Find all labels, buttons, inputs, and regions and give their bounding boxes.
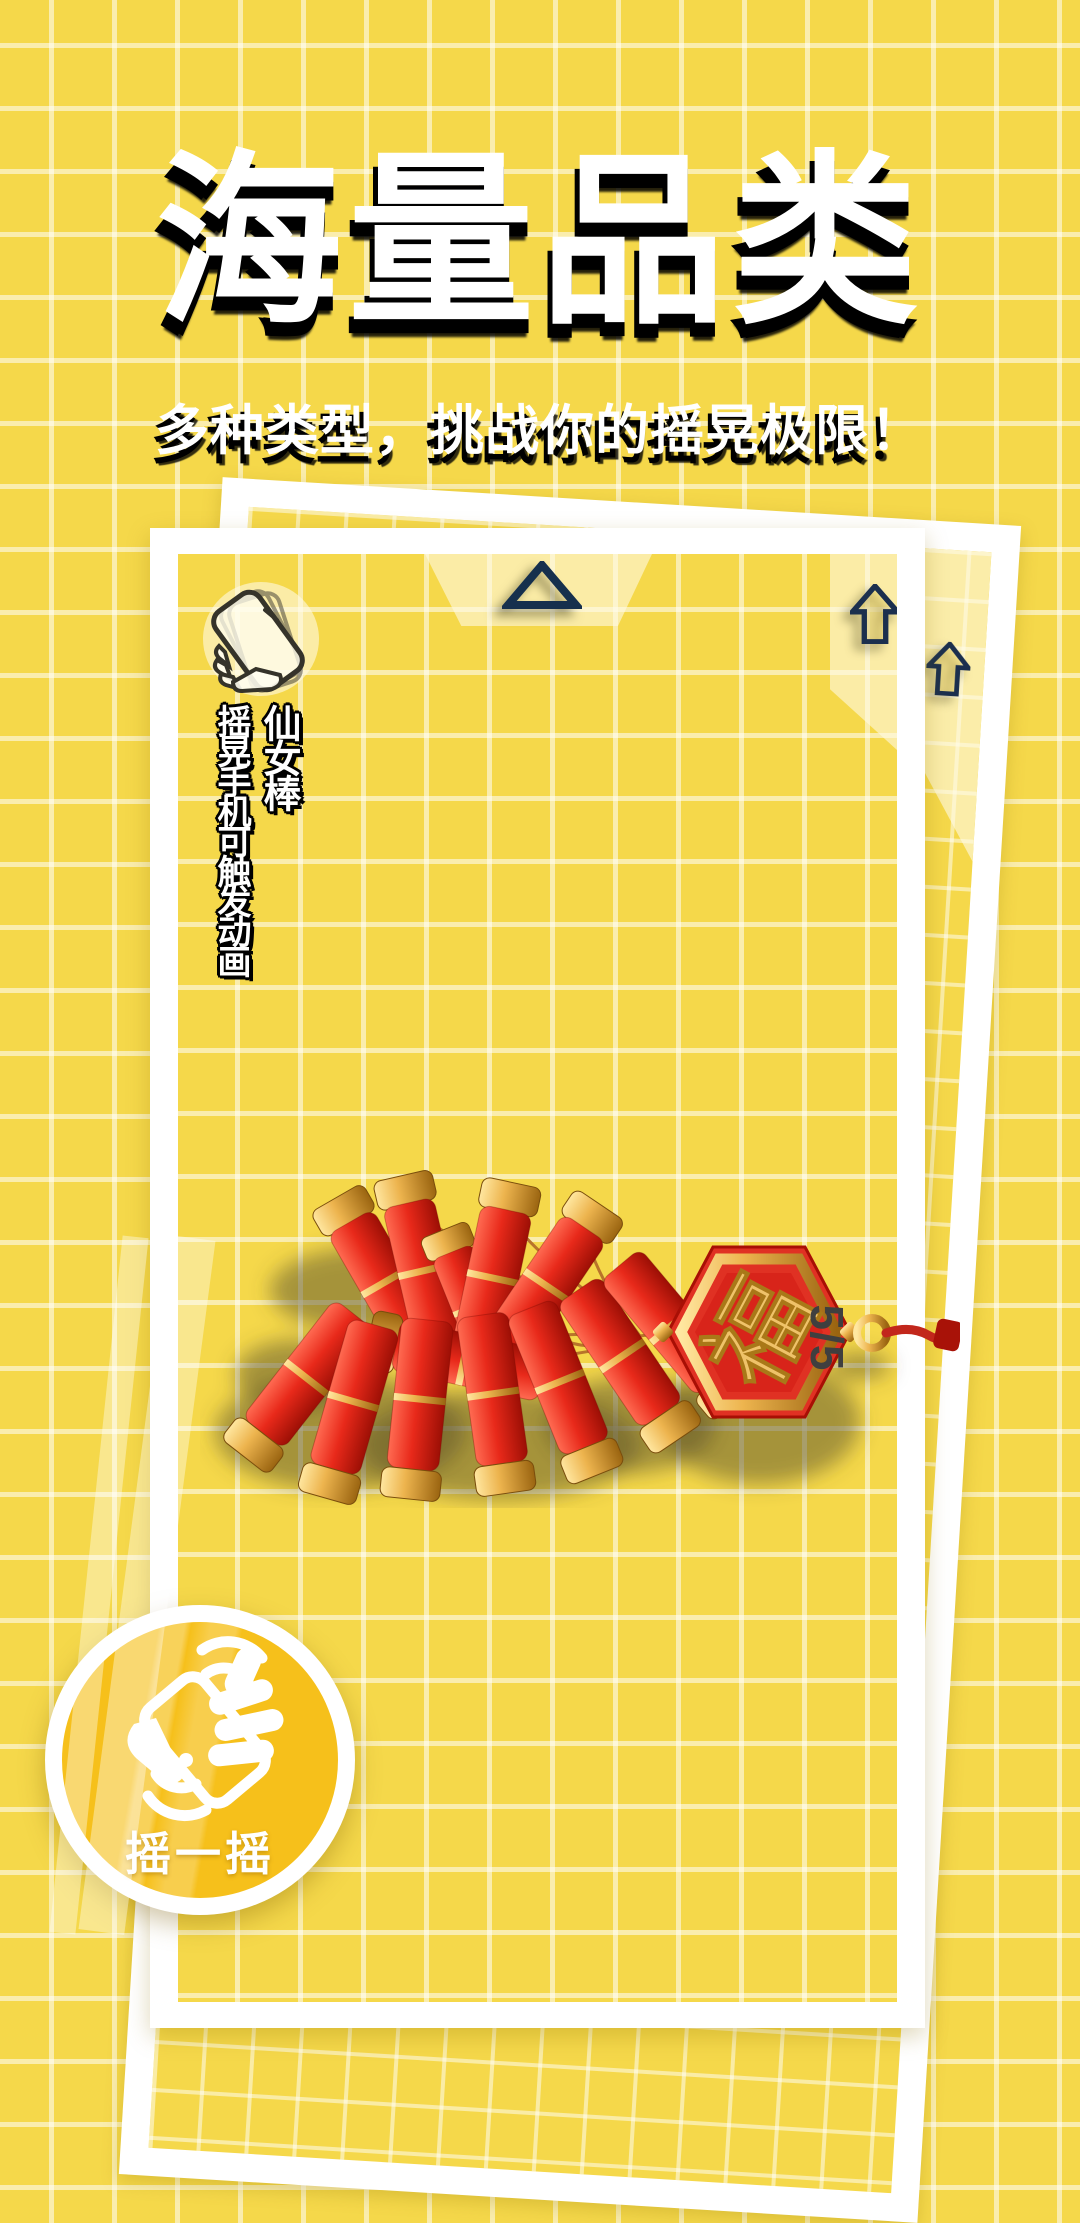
pendant-cord xyxy=(857,1318,960,1353)
item-name: 仙女棒 xyxy=(254,704,302,1024)
up-arrow-icon-front xyxy=(850,584,897,644)
up-triangle-icon xyxy=(502,561,582,609)
shake-badge-label: 摇一摇 xyxy=(62,1818,338,1884)
page: { "page": { "title": "海量品类", "subtitle":… xyxy=(0,0,1080,1920)
page-title: 海量品类 xyxy=(0,150,1080,336)
item-labels: 仙女棒 摇晃手机可触发动画 xyxy=(208,704,302,1024)
page-subtitle: 多种类型，挑战你的摇晃极限！ xyxy=(0,386,1080,465)
shake-badge[interactable]: 摇一摇 xyxy=(45,1605,355,1915)
up-arrow-icon-back xyxy=(925,641,972,698)
shake-phone-icon xyxy=(205,584,317,698)
shake-hands-icon xyxy=(90,1628,310,1828)
page-counter: 5/5 xyxy=(804,1293,850,1383)
item-hint: 摇晃手机可触发动画 xyxy=(208,704,254,1024)
